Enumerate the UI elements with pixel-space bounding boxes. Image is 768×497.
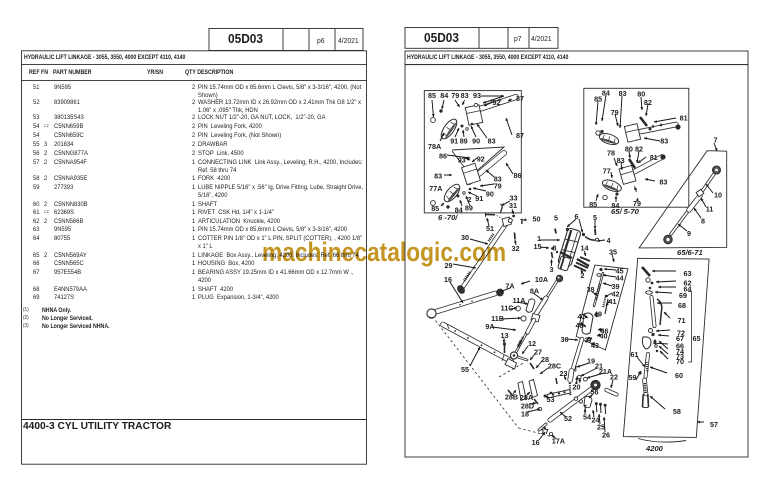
svg-text:83: 83 bbox=[619, 89, 627, 98]
svg-text:79: 79 bbox=[494, 182, 502, 191]
svg-text:10: 10 bbox=[714, 191, 722, 200]
svg-text:4200: 4200 bbox=[645, 444, 664, 453]
svg-text:26: 26 bbox=[602, 431, 610, 440]
svg-text:87: 87 bbox=[516, 94, 524, 103]
svg-text:14: 14 bbox=[581, 244, 589, 253]
svg-text:17A: 17A bbox=[552, 437, 565, 446]
svg-text:78A: 78A bbox=[428, 142, 441, 151]
svg-text:44: 44 bbox=[616, 273, 624, 282]
svg-text:8A: 8A bbox=[530, 287, 539, 296]
svg-text:6 -70/: 6 -70/ bbox=[438, 213, 458, 222]
svg-text:87: 87 bbox=[516, 131, 524, 140]
svg-text:19: 19 bbox=[587, 356, 595, 365]
svg-text:83: 83 bbox=[659, 178, 667, 187]
svg-text:58: 58 bbox=[673, 407, 681, 416]
svg-text:32: 32 bbox=[512, 244, 520, 253]
svg-text:7A: 7A bbox=[505, 282, 514, 291]
svg-text:81: 81 bbox=[650, 153, 658, 162]
svg-text:10A: 10A bbox=[535, 275, 548, 284]
svg-text:47: 47 bbox=[578, 312, 586, 321]
svg-text:90: 90 bbox=[486, 189, 494, 198]
svg-text:5: 5 bbox=[593, 213, 597, 222]
svg-text:92: 92 bbox=[493, 98, 501, 107]
svg-text:9: 9 bbox=[687, 229, 691, 238]
svg-text:11C: 11C bbox=[501, 303, 514, 312]
svg-text:49: 49 bbox=[594, 310, 602, 319]
svg-text:9A: 9A bbox=[485, 322, 494, 331]
svg-text:84: 84 bbox=[602, 89, 610, 98]
svg-text:28B: 28B bbox=[505, 392, 518, 401]
svg-text:83: 83 bbox=[488, 137, 496, 146]
svg-text:90: 90 bbox=[472, 137, 480, 146]
svg-text:50: 50 bbox=[533, 215, 541, 224]
svg-text:23: 23 bbox=[560, 369, 568, 378]
svg-text:2: 2 bbox=[581, 271, 585, 280]
svg-text:13: 13 bbox=[501, 331, 509, 340]
svg-text:38: 38 bbox=[587, 285, 595, 294]
svg-text:36: 36 bbox=[561, 335, 569, 344]
svg-text:86: 86 bbox=[514, 171, 522, 180]
svg-text:93: 93 bbox=[458, 156, 466, 165]
svg-text:93: 93 bbox=[473, 91, 481, 100]
svg-text:92: 92 bbox=[477, 155, 485, 164]
svg-text:43: 43 bbox=[591, 341, 599, 350]
svg-text:11A: 11A bbox=[513, 296, 526, 305]
svg-text:40: 40 bbox=[600, 332, 608, 341]
svg-text:51: 51 bbox=[486, 224, 494, 233]
svg-text:17: 17 bbox=[541, 427, 549, 436]
svg-text:65: 65 bbox=[693, 334, 701, 343]
svg-text:57: 57 bbox=[710, 420, 718, 429]
svg-text:60: 60 bbox=[675, 371, 683, 380]
svg-text:48: 48 bbox=[576, 321, 584, 330]
svg-text:77A: 77A bbox=[429, 184, 442, 193]
svg-text:77: 77 bbox=[603, 166, 611, 175]
svg-text:35: 35 bbox=[609, 248, 617, 257]
svg-text:69: 69 bbox=[679, 291, 687, 300]
svg-text:80: 80 bbox=[625, 145, 633, 154]
svg-text:81: 81 bbox=[680, 114, 688, 123]
svg-text:56: 56 bbox=[591, 387, 599, 396]
svg-text:83: 83 bbox=[434, 172, 442, 181]
svg-text:20: 20 bbox=[573, 382, 581, 391]
svg-text:91: 91 bbox=[450, 137, 458, 146]
svg-text:83: 83 bbox=[617, 156, 625, 165]
svg-text:41: 41 bbox=[609, 297, 617, 306]
svg-text:86: 86 bbox=[439, 151, 447, 160]
svg-text:85: 85 bbox=[589, 200, 597, 209]
svg-text:85: 85 bbox=[428, 91, 436, 100]
svg-text:89: 89 bbox=[465, 204, 473, 213]
svg-text:85: 85 bbox=[431, 204, 439, 213]
svg-text:85: 85 bbox=[594, 94, 602, 103]
svg-text:53: 53 bbox=[547, 395, 555, 404]
svg-text:83: 83 bbox=[660, 137, 668, 146]
svg-text:16: 16 bbox=[444, 275, 452, 284]
svg-text:61: 61 bbox=[631, 350, 639, 359]
svg-text:54: 54 bbox=[583, 413, 591, 422]
svg-text:16: 16 bbox=[532, 438, 540, 447]
svg-text:55: 55 bbox=[461, 365, 469, 374]
svg-text:52: 52 bbox=[564, 414, 572, 423]
svg-text:79: 79 bbox=[451, 91, 459, 100]
svg-text:8: 8 bbox=[553, 244, 557, 253]
svg-text:65/6-71: 65/6-71 bbox=[677, 248, 703, 257]
svg-text:70: 70 bbox=[676, 357, 684, 366]
svg-text:82: 82 bbox=[635, 145, 643, 154]
svg-text:6: 6 bbox=[575, 212, 579, 221]
svg-text:8: 8 bbox=[701, 216, 705, 225]
svg-text:31: 31 bbox=[509, 201, 517, 210]
svg-text:4: 4 bbox=[607, 236, 611, 245]
svg-text:78: 78 bbox=[607, 149, 615, 158]
svg-text:5: 5 bbox=[554, 214, 558, 223]
svg-text:84: 84 bbox=[440, 91, 448, 100]
svg-text:15: 15 bbox=[534, 242, 542, 251]
svg-text:65/ 5-70: 65/ 5-70 bbox=[611, 207, 640, 216]
svg-text:68: 68 bbox=[678, 301, 686, 310]
svg-text:89: 89 bbox=[460, 137, 468, 146]
svg-text:7: 7 bbox=[714, 135, 718, 144]
svg-text:22: 22 bbox=[610, 373, 618, 382]
svg-text:71: 71 bbox=[678, 316, 686, 325]
svg-text:11: 11 bbox=[706, 204, 714, 213]
svg-text:59: 59 bbox=[629, 373, 637, 382]
svg-text:3: 3 bbox=[550, 265, 554, 274]
svg-text:63: 63 bbox=[684, 269, 692, 278]
svg-text:82: 82 bbox=[644, 98, 652, 107]
svg-text:91: 91 bbox=[475, 194, 483, 203]
svg-text:18: 18 bbox=[521, 409, 529, 418]
svg-text:79: 79 bbox=[611, 108, 619, 117]
svg-text:83: 83 bbox=[461, 91, 469, 100]
